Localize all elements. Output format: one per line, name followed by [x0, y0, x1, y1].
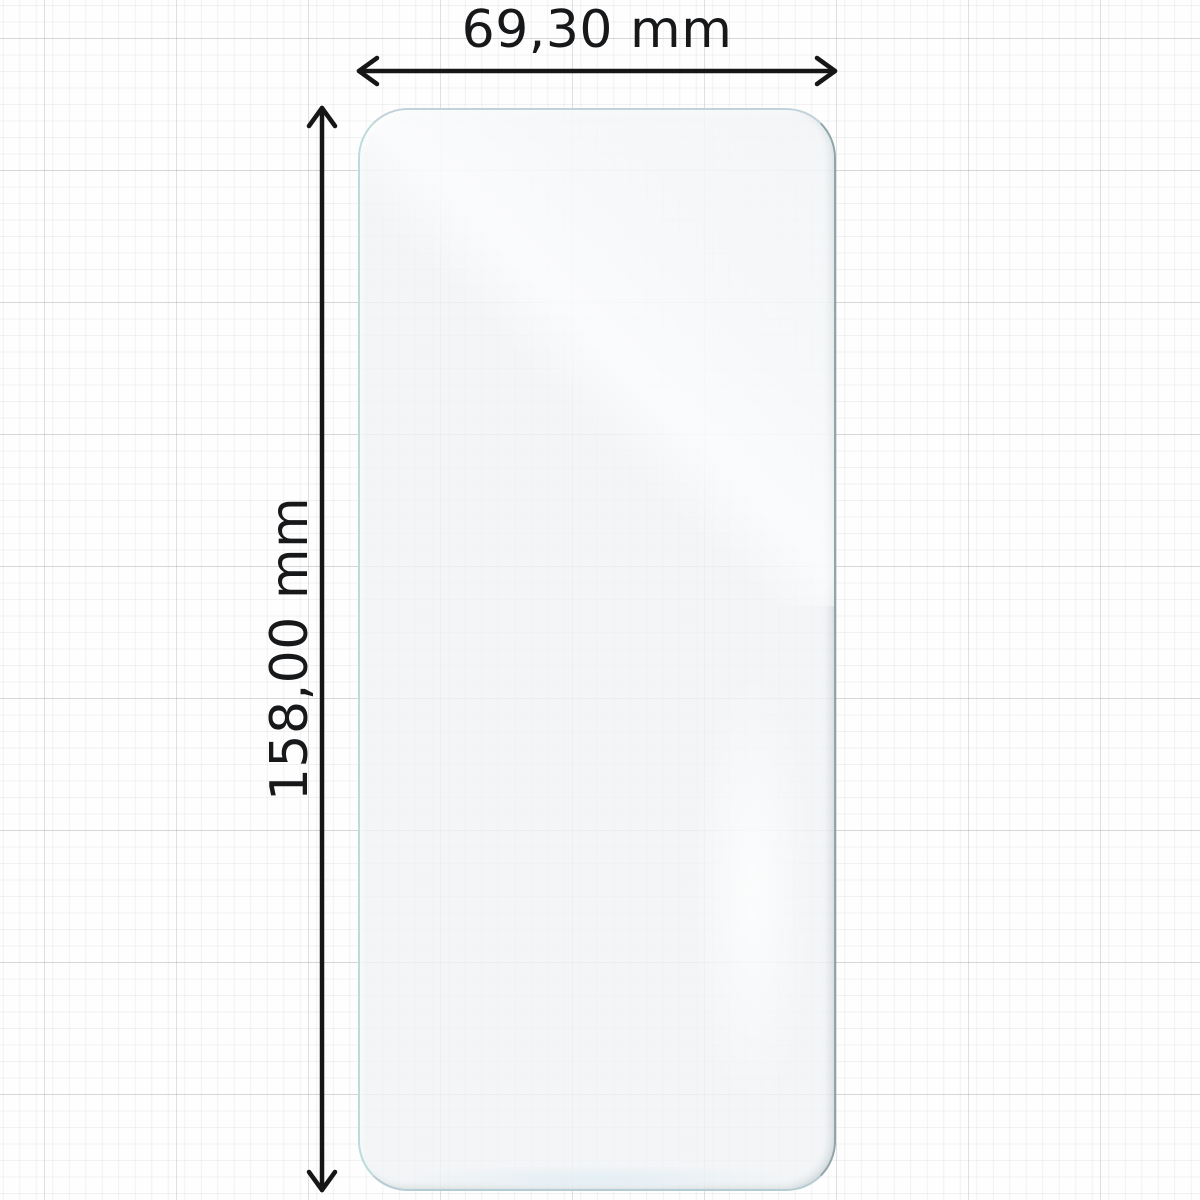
screen-protector-film [358, 108, 836, 1191]
height-dimension-label: 158,00 mm [260, 497, 320, 801]
dimension-diagram: 69,30 mm 158,00 mm [0, 0, 1200, 1200]
film-reflection-top-right [360, 110, 834, 606]
width-dimension-label: 69,30 mm [348, 0, 846, 60]
film-bottom-highlight [407, 1165, 786, 1191]
film-reflection-right-band [692, 671, 812, 1111]
